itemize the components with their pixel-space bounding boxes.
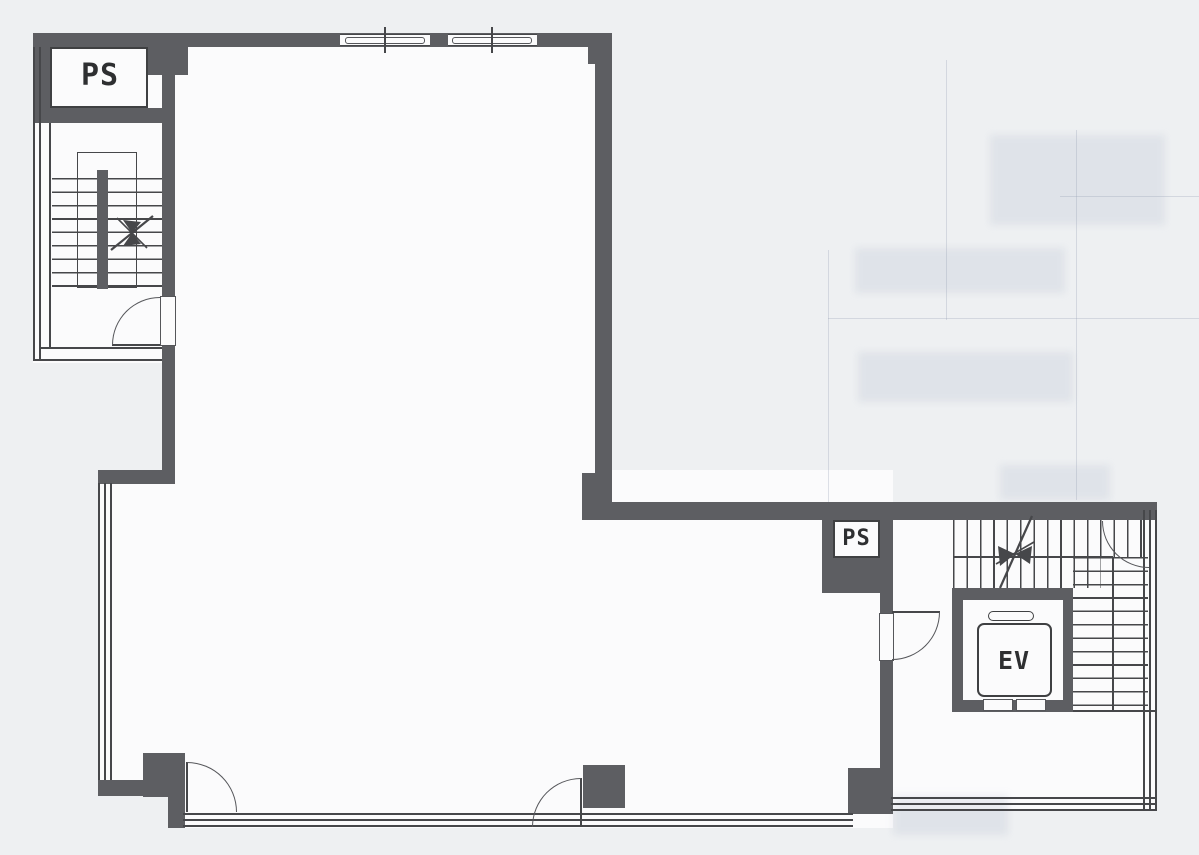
north-window-tick (384, 27, 386, 53)
scan-gridline (828, 318, 1199, 319)
ps-upper-notch (148, 75, 162, 108)
west-step-wall (98, 470, 173, 484)
southwest-column (143, 753, 185, 797)
scan-artifact (855, 248, 1065, 293)
stair-door-opening (160, 296, 176, 346)
ps-lower-label: PS (833, 525, 880, 553)
stair-top-wall (35, 107, 175, 123)
stair-lower-right-handrail-v (1112, 557, 1114, 712)
north-window-tick (491, 27, 493, 53)
upper-wing-east-wall-step (588, 47, 597, 64)
stair-lower-right-bottom-line (1073, 710, 1157, 712)
corridor-wall-lower (880, 661, 893, 768)
stair-west-inner-face (49, 123, 51, 349)
southwest-column-arm-west (98, 780, 144, 796)
elevator-door-slot (983, 699, 1013, 711)
stair-enclosure-bottom-inner (39, 347, 162, 349)
scan-gridline (946, 60, 947, 320)
ps-upper-label: PS (70, 59, 130, 93)
stair-lower-right-down-run (1073, 557, 1148, 712)
stair-direction-arrow-icon (103, 210, 159, 256)
stair-strip-east-wall-lower (162, 346, 175, 484)
floor-plan: PS PS EV (0, 0, 1199, 855)
center-partition-wall (582, 502, 1157, 520)
north-window-mullion-block (430, 34, 448, 46)
elevator-counterweight (988, 611, 1034, 621)
corner-block (582, 473, 612, 503)
scan-gridline (1076, 130, 1077, 500)
stair-west-wall-lines (33, 47, 41, 361)
south-window-wall-right-wing (891, 797, 1157, 811)
stair-strip-east-wall-upper (162, 47, 175, 296)
stair-direction-arrow-icon (990, 512, 1040, 592)
scan-artifact (990, 135, 1165, 225)
west-window-wall (98, 483, 112, 780)
scan-gridline (1060, 196, 1199, 197)
ps-lower-west-wall (822, 520, 833, 557)
scan-artifact (1000, 465, 1110, 500)
scan-artifact (858, 352, 1073, 402)
south-center-right-column (848, 768, 893, 814)
scan-gridline (828, 250, 829, 505)
stair-enclosure-bottom-outer (33, 359, 162, 361)
elevator-label: EV (984, 646, 1044, 674)
elevator-door-slot (1016, 699, 1046, 711)
south-middle-column (583, 765, 625, 808)
corridor-wall-upper (880, 520, 893, 613)
south-window-wall-main (183, 813, 853, 827)
upper-wing-east-wall (595, 33, 612, 480)
